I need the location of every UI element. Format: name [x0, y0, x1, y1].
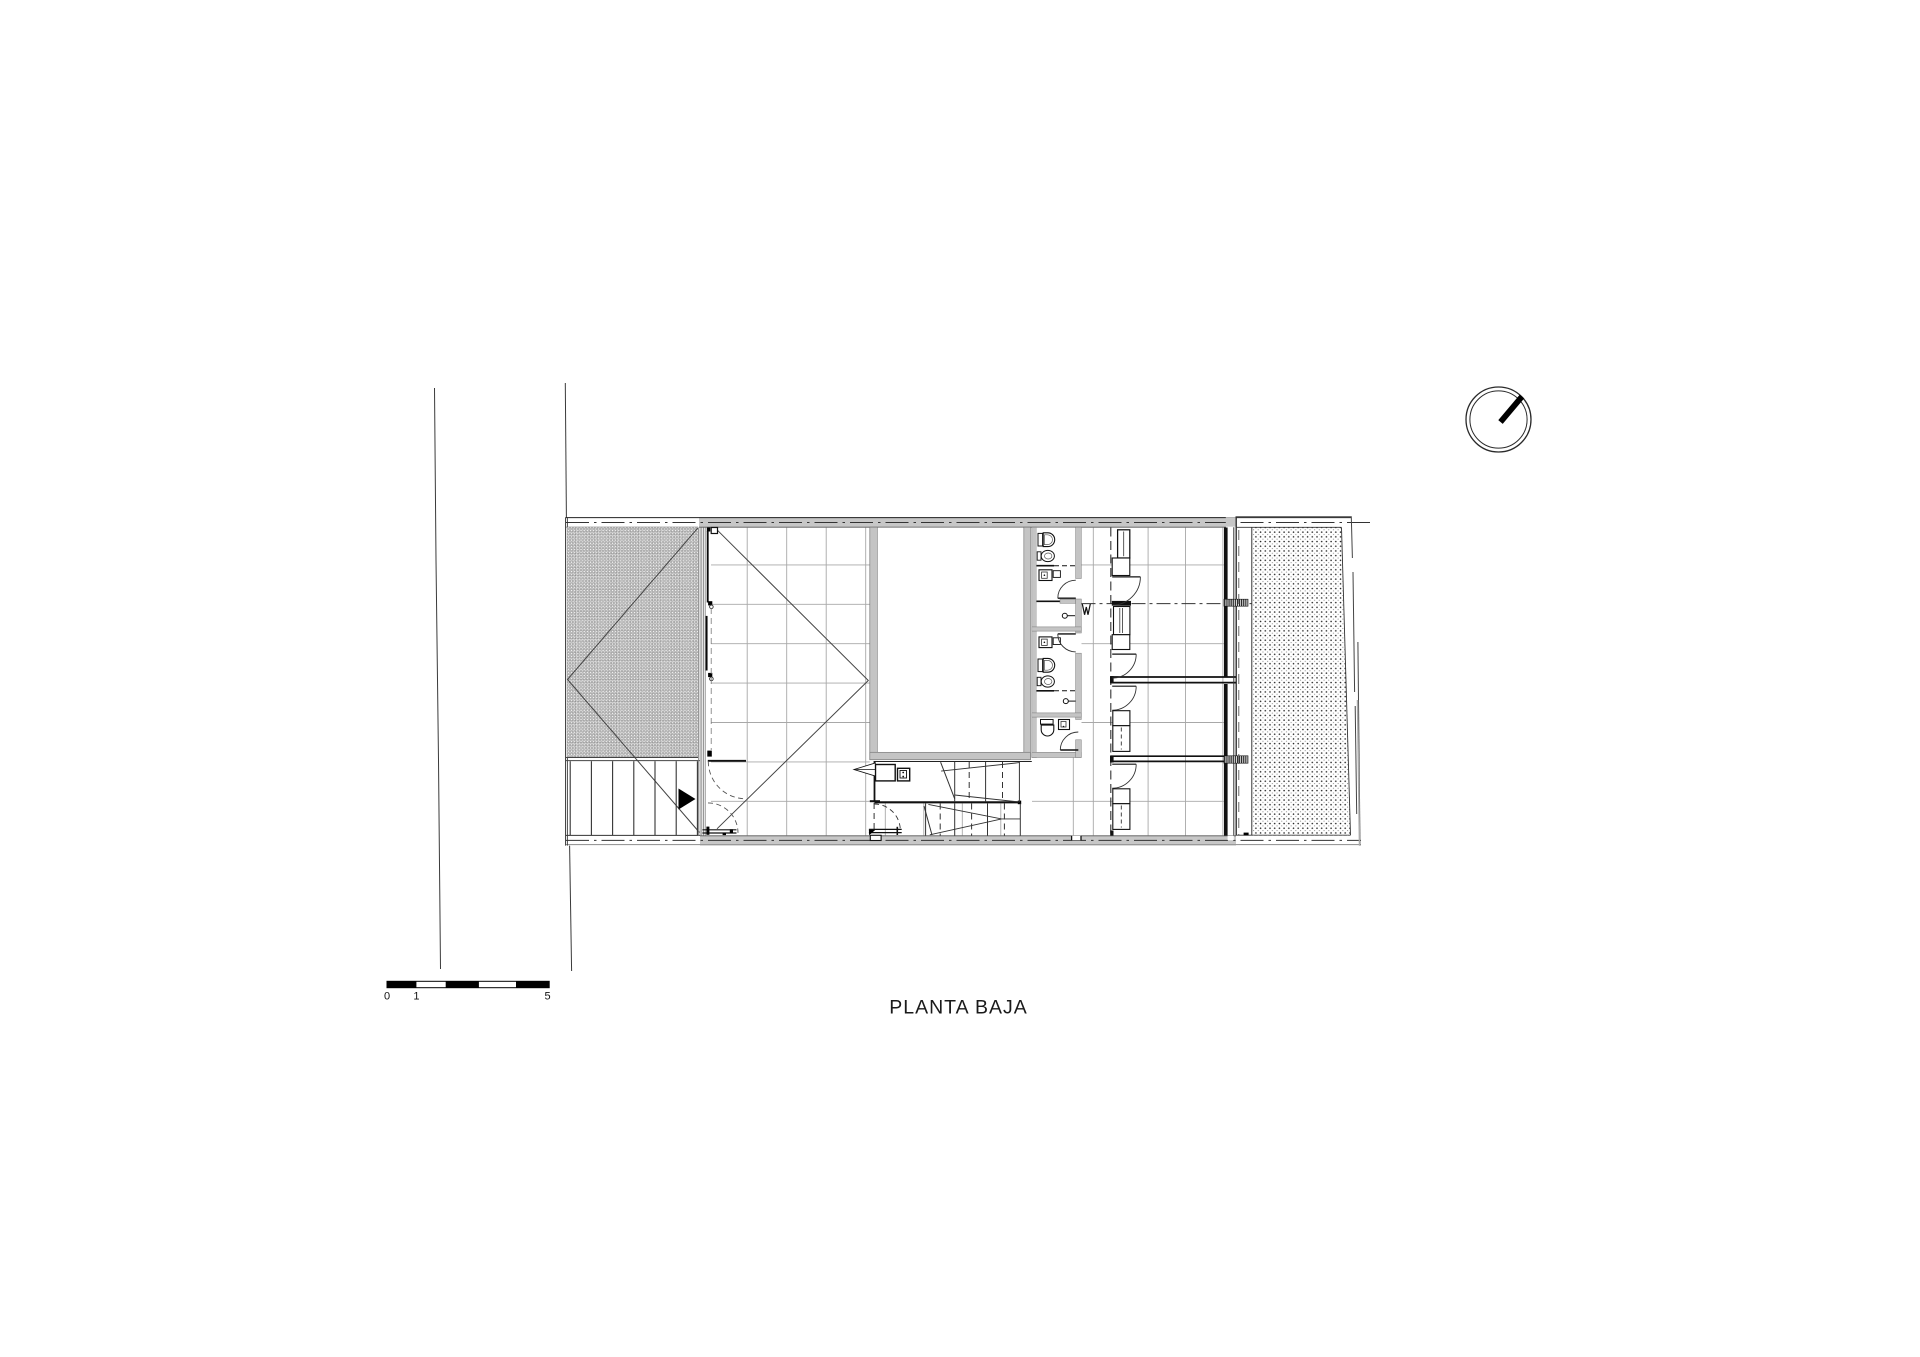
svg-text:5: 5	[544, 991, 550, 1003]
svg-text:PLANTA BAJA: PLANTA BAJA	[889, 997, 1028, 1019]
svg-text:1: 1	[413, 991, 419, 1003]
svg-text:0: 0	[384, 991, 390, 1003]
